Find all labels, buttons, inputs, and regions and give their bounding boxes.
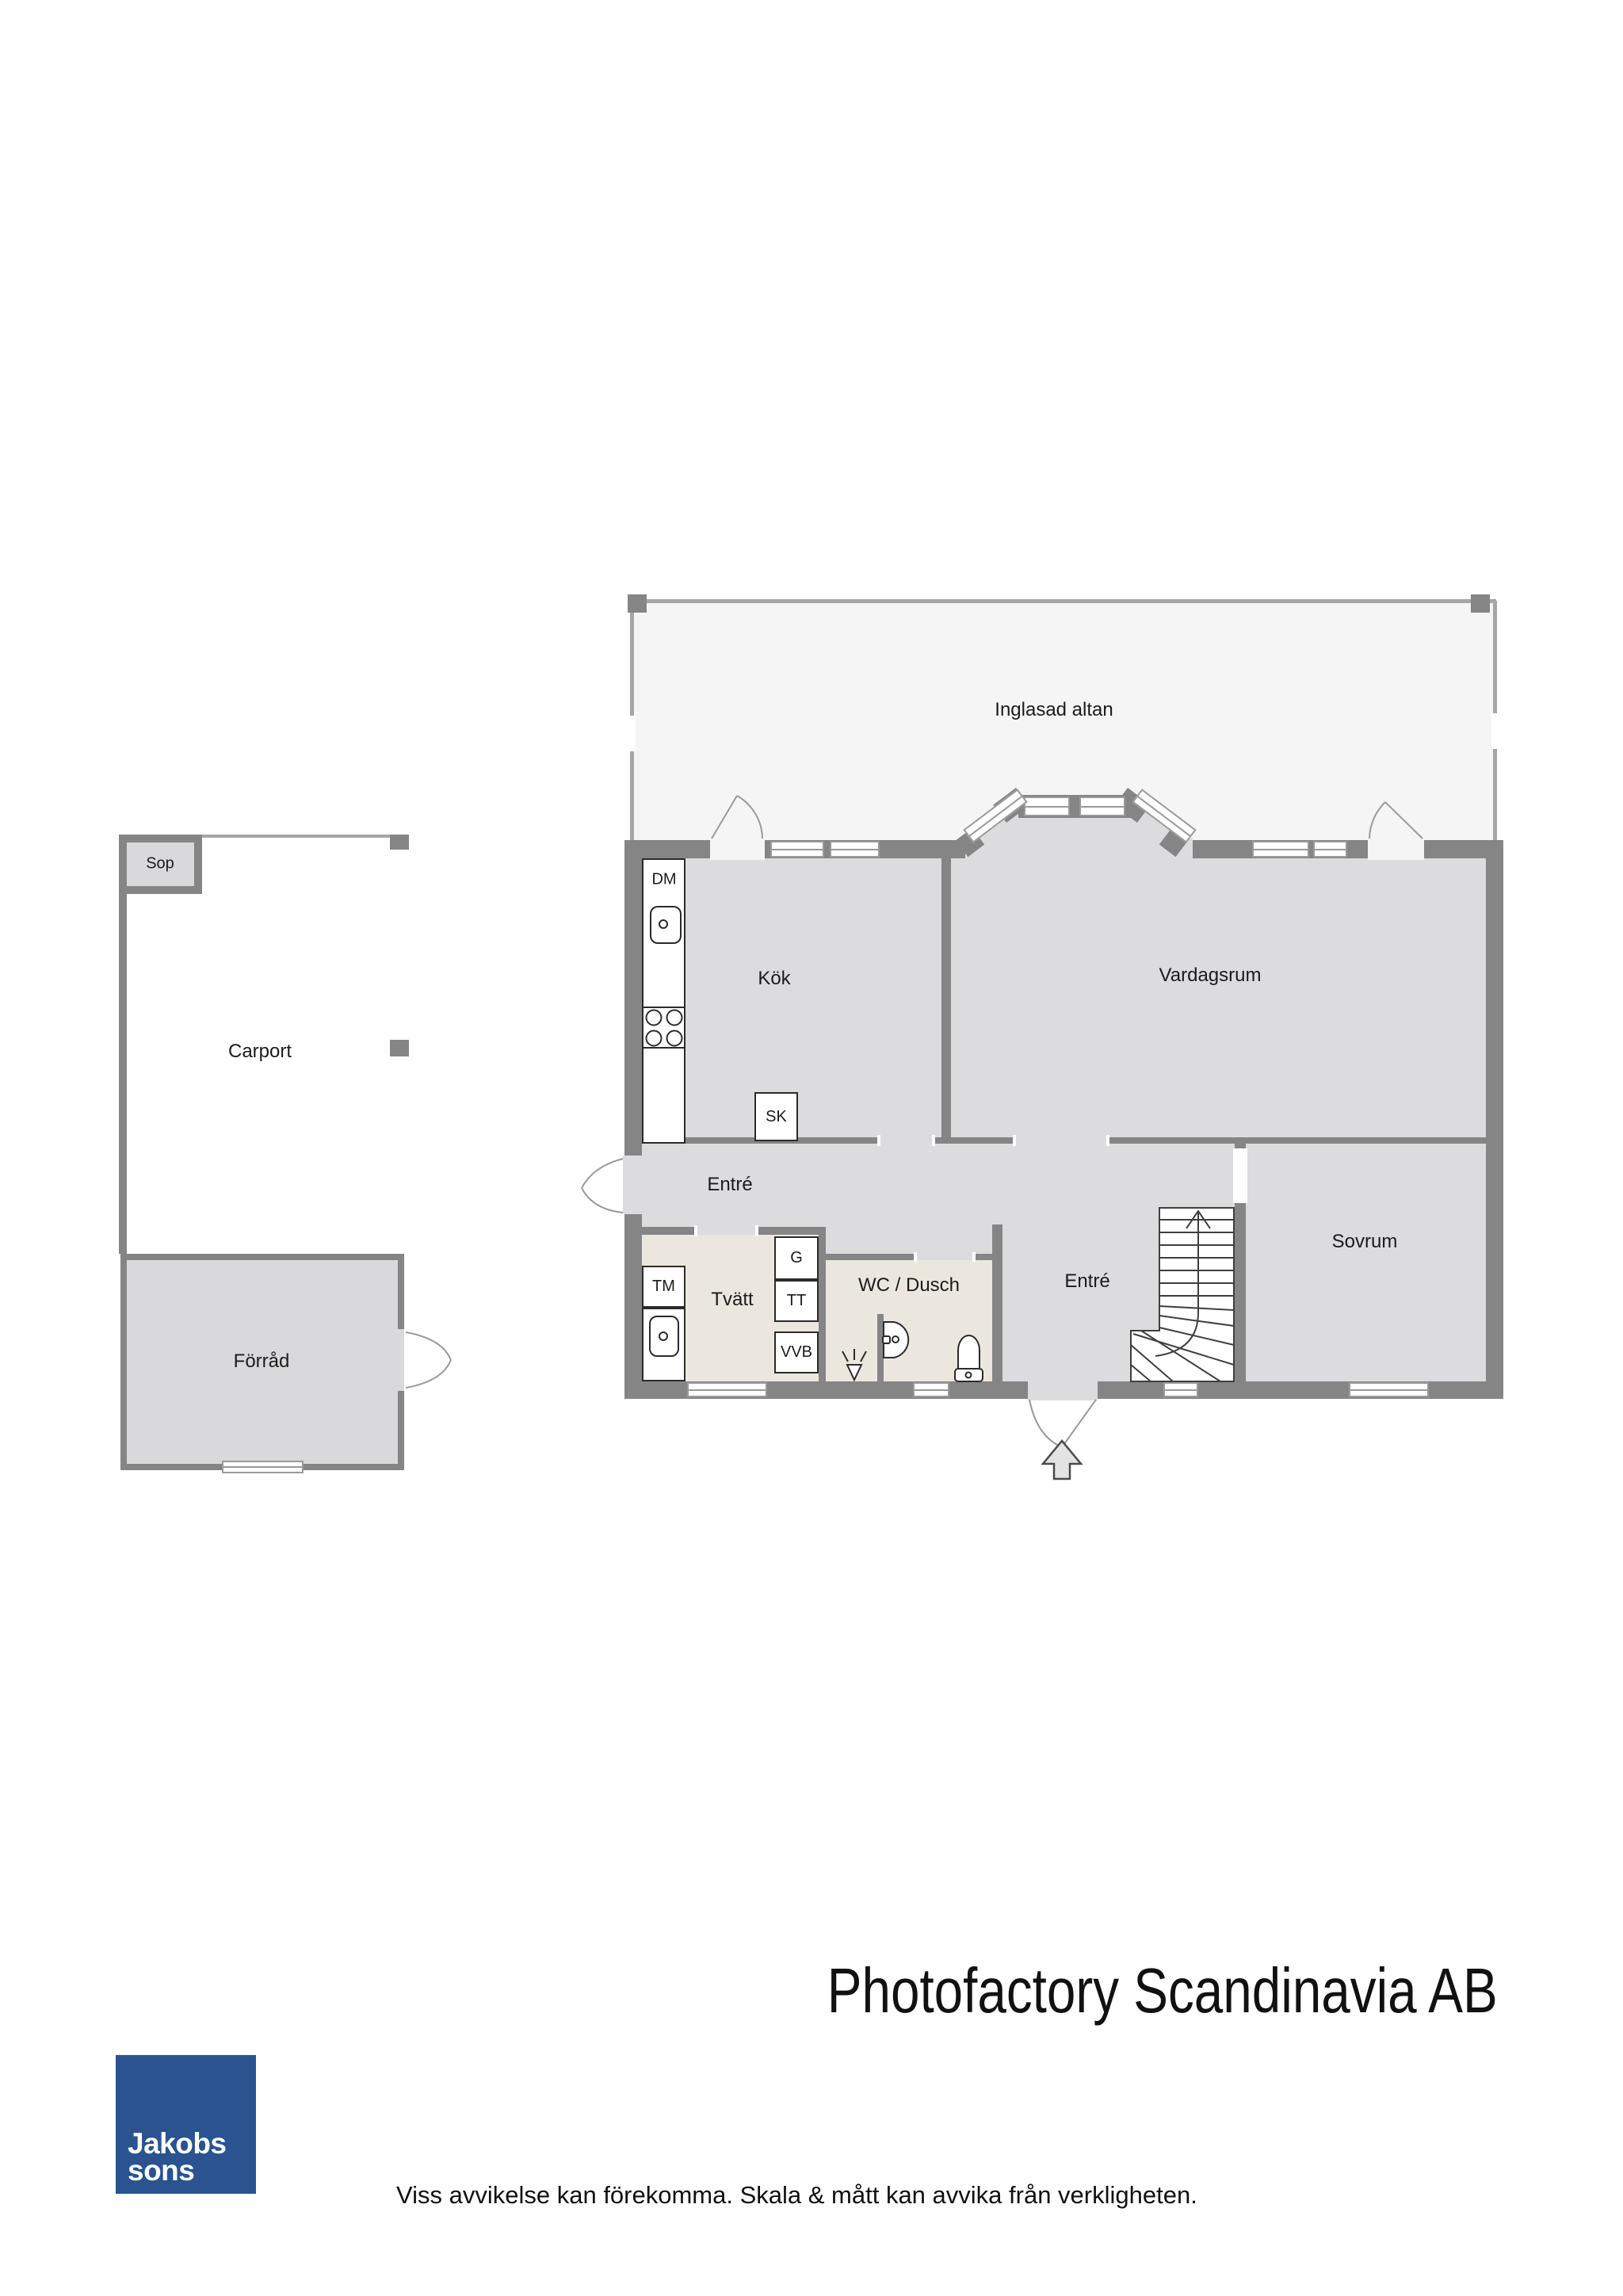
living-porch-door-opening — [1368, 837, 1424, 860]
carport-post — [390, 835, 409, 850]
jamb-tick — [755, 1225, 758, 1236]
stove — [642, 1007, 685, 1049]
storage-right-wall-b — [398, 1391, 404, 1464]
room-label-living: Vardagsrum — [1159, 965, 1262, 987]
laundry-top-wall-b — [755, 1227, 826, 1235]
hall-window — [1163, 1382, 1198, 1397]
bathroom-window — [913, 1382, 949, 1397]
kitchen-porch-door-opening — [710, 837, 765, 860]
porch-left-wall-break — [628, 716, 636, 751]
entrance-arrow-icon — [1043, 1441, 1081, 1479]
bedroom-floor — [1246, 1144, 1486, 1381]
room-label-trash: Sop — [146, 855, 174, 873]
laundry-window — [687, 1382, 767, 1397]
wardrobe-box: G — [774, 1236, 819, 1280]
room-label-storage: Förråd — [234, 1350, 290, 1373]
storage-top-wall — [120, 1254, 404, 1260]
logo-line1: Jakobs — [128, 2130, 227, 2157]
bath-top-wall-a — [826, 1254, 917, 1260]
side-entrance-opening — [623, 1156, 643, 1214]
disclaimer-text: Viss avvikelse kan förekomma. Skala & må… — [396, 2181, 1197, 2210]
laundry-bath-divider-wall — [819, 1227, 826, 1381]
kitchen-window — [830, 841, 880, 858]
carport-post — [390, 1040, 409, 1056]
storage-left-wall — [120, 1260, 127, 1470]
tall-cabinet-box: SK — [754, 1092, 798, 1141]
living-room-window — [1252, 841, 1309, 858]
room-label-inner-hall: Entré — [1064, 1270, 1109, 1293]
bath-divider-stub — [877, 1314, 884, 1381]
room-label-carport: Carport — [228, 1041, 292, 1063]
house-left-wall — [624, 840, 642, 1399]
bath-right-wall — [992, 1224, 1002, 1381]
porch-post-topleft — [628, 594, 647, 613]
hall-top-wall-c — [1106, 1137, 1486, 1144]
jakobssons-logo: Jakobs sons — [116, 2055, 256, 2194]
jamb-tick — [1106, 1135, 1109, 1146]
logo-line2: sons — [128, 2157, 227, 2184]
room-label-kitchen: Kök — [758, 968, 790, 990]
porch-right-wall-break — [1491, 713, 1499, 749]
bedroom-window — [1349, 1382, 1429, 1397]
room-label-porch: Inglasad altan — [995, 699, 1113, 721]
laundry-sink-counter — [642, 1308, 685, 1381]
bedroom-doorway — [1233, 1148, 1247, 1203]
jamb-tick — [914, 1252, 917, 1262]
bay-window-left-front — [1024, 797, 1070, 816]
front-entrance-opening — [1028, 1380, 1098, 1400]
porch-top-wall — [632, 599, 1496, 603]
living-room-floor — [951, 858, 1486, 1144]
storage-door-opening — [398, 1329, 404, 1391]
water-heater-label: VVB — [781, 1343, 812, 1362]
tall-cabinet-label: SK — [766, 1108, 787, 1126]
washing-machine-box: TM — [642, 1266, 685, 1308]
jamb-tick — [1013, 1135, 1016, 1146]
company-title: Photofactory Scandinavia AB — [827, 1954, 1498, 2027]
laundry-top-wall-a — [642, 1227, 697, 1235]
dryer-box: TT — [774, 1280, 819, 1322]
carport-left-wall — [119, 894, 127, 1254]
bay-window-right-front — [1079, 797, 1125, 816]
floorplan-page: SK TM G TT VVB — [0, 0, 1623, 2296]
jakobssons-logo-text: Jakobs sons — [128, 2130, 227, 2184]
jamb-tick — [877, 1135, 880, 1146]
wardrobe-label: G — [790, 1249, 803, 1267]
porch-post-topright — [1471, 594, 1490, 613]
room-label-hall: Entré — [707, 1174, 752, 1196]
washing-machine-label: TM — [652, 1278, 675, 1296]
bay-opening — [965, 839, 1193, 858]
living-room-window — [1313, 841, 1347, 858]
kitchen-window — [770, 841, 824, 858]
room-label-bedroom: Sovrum — [1332, 1231, 1398, 1253]
room-label-laundry: Tvätt — [711, 1289, 753, 1311]
jamb-tick — [972, 1252, 976, 1262]
house-right-wall — [1486, 842, 1503, 1399]
water-heater-box: VVB — [774, 1331, 819, 1373]
carport-top-edge — [202, 835, 390, 838]
dryer-label: TT — [787, 1292, 806, 1310]
storage-window — [222, 1461, 304, 1473]
dishwasher-label: DM — [651, 871, 676, 889]
storage-right-wall-a — [398, 1260, 404, 1329]
kitchen-living-divider-wall — [941, 840, 951, 1144]
room-label-bath: WC / Dusch — [858, 1274, 960, 1297]
kitchen-counter — [642, 1047, 685, 1144]
jamb-tick — [932, 1135, 935, 1146]
jamb-tick — [694, 1225, 697, 1236]
